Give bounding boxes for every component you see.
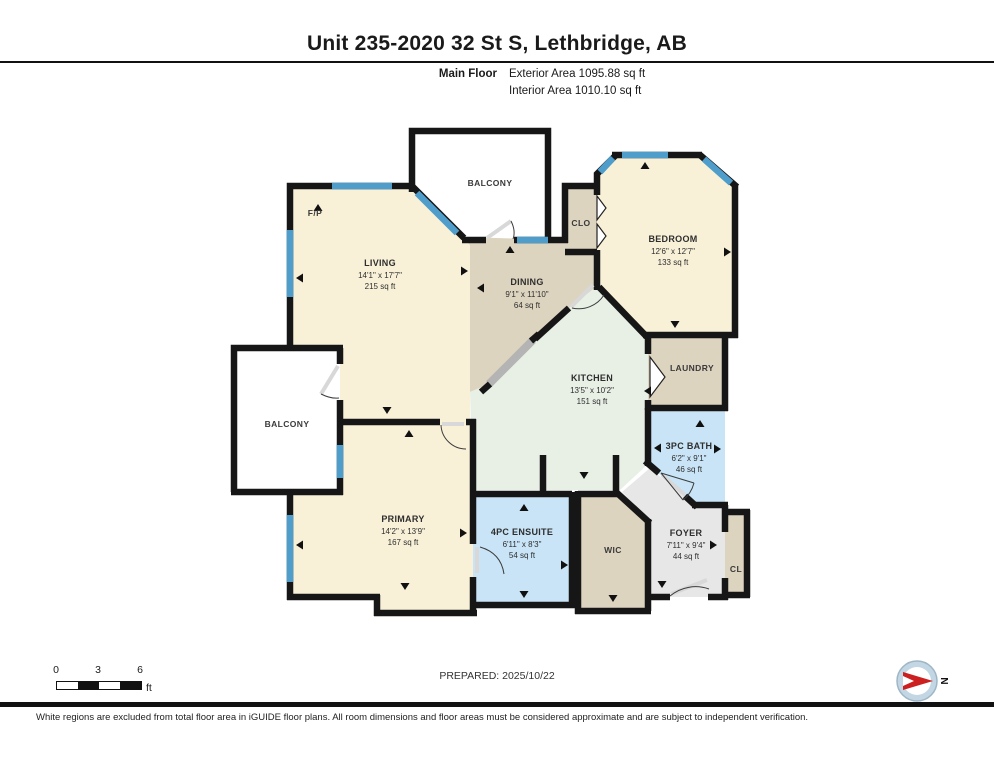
living-dims: 14'1" x 17'7" — [358, 271, 402, 280]
primary-dims: 14'2" x 13'9" — [381, 527, 425, 536]
ensuite-label: 4PC ENSUITE — [491, 527, 553, 537]
bath-area: 46 sq ft — [676, 465, 703, 474]
ensuite-dims: 6'11" x 8'3" — [503, 540, 542, 549]
scale-bar: 0 3 6 ft — [50, 664, 180, 700]
foyer-dims: 7'11" x 9'4" — [667, 541, 706, 550]
scale-tick-3: 3 — [88, 664, 108, 676]
disclaimer-text: White regions are excluded from total fl… — [36, 712, 966, 723]
compass-icon: N — [897, 661, 949, 701]
scale-unit: ft — [146, 682, 152, 694]
dining-label: DINING — [510, 277, 543, 287]
wic-label: WIC — [604, 545, 622, 555]
prepared-date: PREPARED: 2025/10/22 — [347, 670, 647, 682]
bath-label: 3PC BATH — [666, 441, 713, 451]
balcony-left-label: BALCONY — [265, 419, 310, 429]
cl-label: CL — [730, 564, 742, 574]
bath-dims: 6'2" x 9'1" — [672, 454, 707, 463]
living-area: 215 sq ft — [365, 282, 396, 291]
floorplan-page: Unit 235-2020 32 St S, Lethbridge, AB Ma… — [0, 0, 994, 768]
laundry-label: LAUNDRY — [670, 363, 714, 373]
foyer-label: FOYER — [670, 528, 703, 538]
fireplace-label: F/P — [308, 208, 322, 218]
kitchen-area: 151 sq ft — [577, 397, 608, 406]
dining-dims: 9'1" x 11'10" — [505, 290, 548, 299]
floorplan-drawing: LIVING 14'1" x 17'7" 215 sq ft DINING 9'… — [0, 0, 994, 768]
primary-label: PRIMARY — [381, 514, 424, 524]
bedroom-label: BEDROOM — [648, 234, 697, 244]
compass-north-label: N — [938, 677, 949, 684]
dining-area: 64 sq ft — [514, 301, 541, 310]
bedroom-dims: 12'6" x 12'7" — [651, 247, 695, 256]
primary-area: 167 sq ft — [388, 538, 419, 547]
kitchen-label: KITCHEN — [571, 373, 613, 383]
scale-bar-segments — [56, 681, 142, 690]
footer-divider — [0, 702, 994, 707]
balcony-top-label: BALCONY — [468, 178, 513, 188]
foyer-area: 44 sq ft — [673, 552, 700, 561]
kitchen-dims: 13'5" x 10'2" — [570, 386, 614, 395]
clo-label: CLO — [571, 218, 590, 228]
scale-tick-0: 0 — [46, 664, 66, 676]
scale-tick-6: 6 — [130, 664, 150, 676]
room-cl — [725, 512, 747, 595]
ensuite-area: 54 sq ft — [509, 551, 536, 560]
bedroom-area: 133 sq ft — [658, 258, 689, 267]
living-label: LIVING — [364, 258, 396, 268]
